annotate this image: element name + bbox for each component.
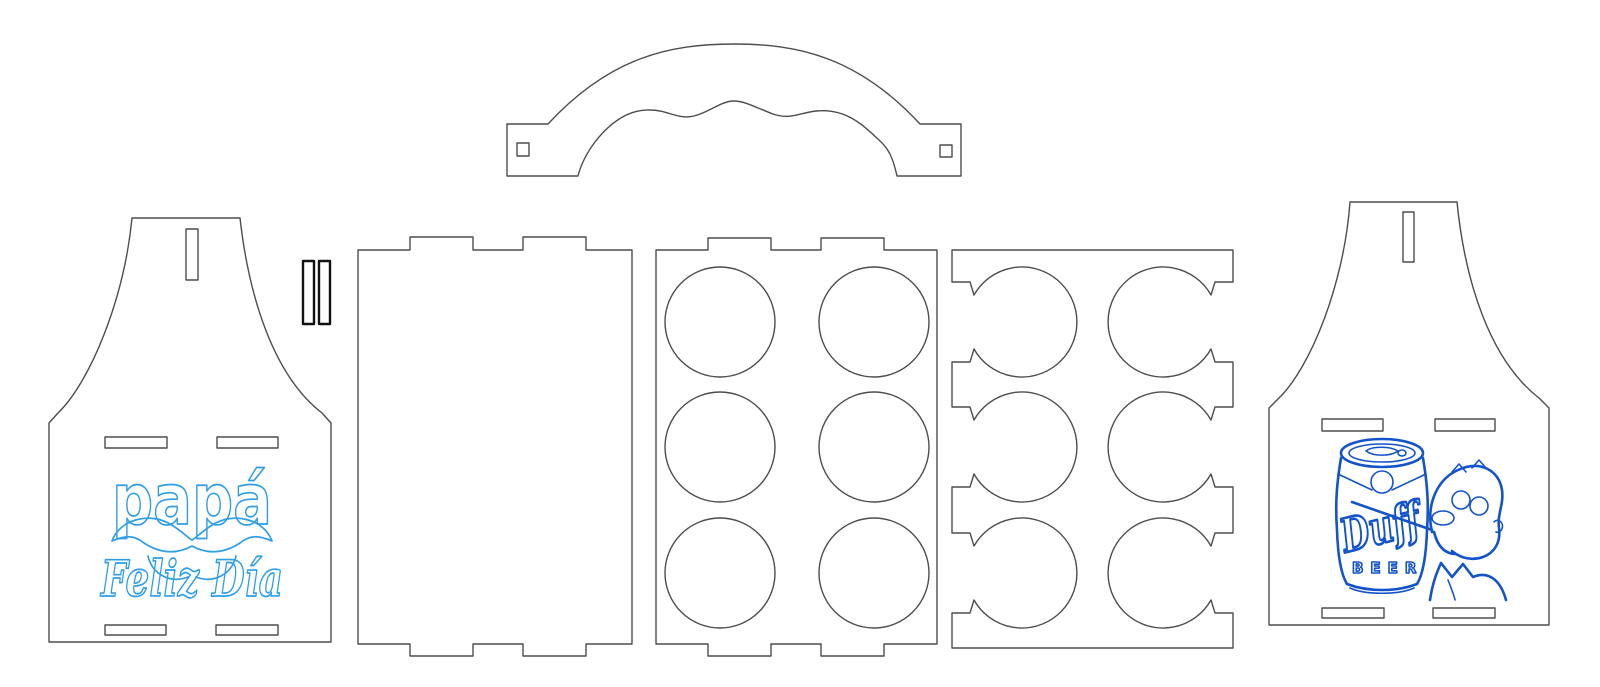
bottle-hole bbox=[665, 267, 775, 377]
back-panel-slot-upper-left bbox=[1322, 419, 1383, 431]
duff-engraving: Duff BEER bbox=[1333, 439, 1506, 600]
homer-eye-right bbox=[1470, 497, 1488, 515]
homer-eye-left bbox=[1452, 491, 1470, 509]
pin-left bbox=[303, 261, 314, 324]
bottle-tray-piece[interactable] bbox=[656, 238, 937, 656]
handle-outline bbox=[507, 44, 961, 176]
front-panel-slot-lower-right bbox=[216, 625, 278, 635]
design-canvas: papá Feliz Día bbox=[0, 0, 1600, 687]
handle-piece[interactable] bbox=[507, 44, 961, 176]
bottle-divider-outline bbox=[952, 250, 1233, 648]
bottle-divider-piece[interactable] bbox=[952, 250, 1233, 648]
beer-can-band bbox=[1338, 474, 1426, 490]
papa-engraving: papá Feliz Día bbox=[100, 459, 283, 608]
bottle-hole bbox=[819, 518, 929, 628]
feliz-dia-word: Feliz Día bbox=[100, 549, 283, 608]
front-panel-slot-upper-right bbox=[217, 437, 278, 448]
back-panel-piece[interactable]: Duff BEER bbox=[1269, 202, 1549, 625]
back-panel-slot-lower-right bbox=[1433, 608, 1495, 618]
bottle-hole bbox=[819, 392, 929, 502]
back-panel-slot-lower-left bbox=[1322, 608, 1384, 618]
homer-collar-shoulders bbox=[1430, 563, 1506, 600]
front-panel-top-slot bbox=[186, 229, 198, 280]
bottle-hole bbox=[665, 518, 775, 628]
bottle-hole bbox=[819, 267, 929, 377]
back-panel-slot-upper-right bbox=[1435, 419, 1495, 431]
pin-pieces[interactable] bbox=[303, 261, 330, 324]
side-panel-outline bbox=[358, 237, 632, 656]
beer-can-bottom-rim bbox=[1347, 584, 1417, 593]
bottle-tray-outline bbox=[656, 238, 937, 656]
beer-caption-text: BEER bbox=[1352, 559, 1423, 577]
duff-brand-text: Duff bbox=[1333, 490, 1430, 563]
template-drawing: papá Feliz Día bbox=[0, 0, 1600, 687]
homer-shirt-fold bbox=[1448, 580, 1455, 600]
handle-pin-hole-left bbox=[517, 143, 529, 156]
homer-head-outline bbox=[1430, 466, 1502, 559]
homer-nose bbox=[1432, 511, 1454, 525]
front-panel-slot-upper-left bbox=[105, 437, 167, 448]
handle-pin-hole-right bbox=[940, 145, 952, 157]
back-panel-top-slot bbox=[1403, 212, 1414, 262]
beer-can-band-circle bbox=[1371, 471, 1393, 493]
front-panel-piece[interactable]: papá Feliz Día bbox=[49, 218, 331, 642]
pin-right bbox=[319, 261, 330, 324]
bottle-hole bbox=[665, 392, 775, 502]
papa-word: papá bbox=[112, 459, 272, 541]
front-panel-slot-lower-left bbox=[105, 625, 166, 635]
beer-can-pull-tab bbox=[1366, 447, 1406, 456]
side-panel-piece[interactable] bbox=[358, 237, 632, 656]
